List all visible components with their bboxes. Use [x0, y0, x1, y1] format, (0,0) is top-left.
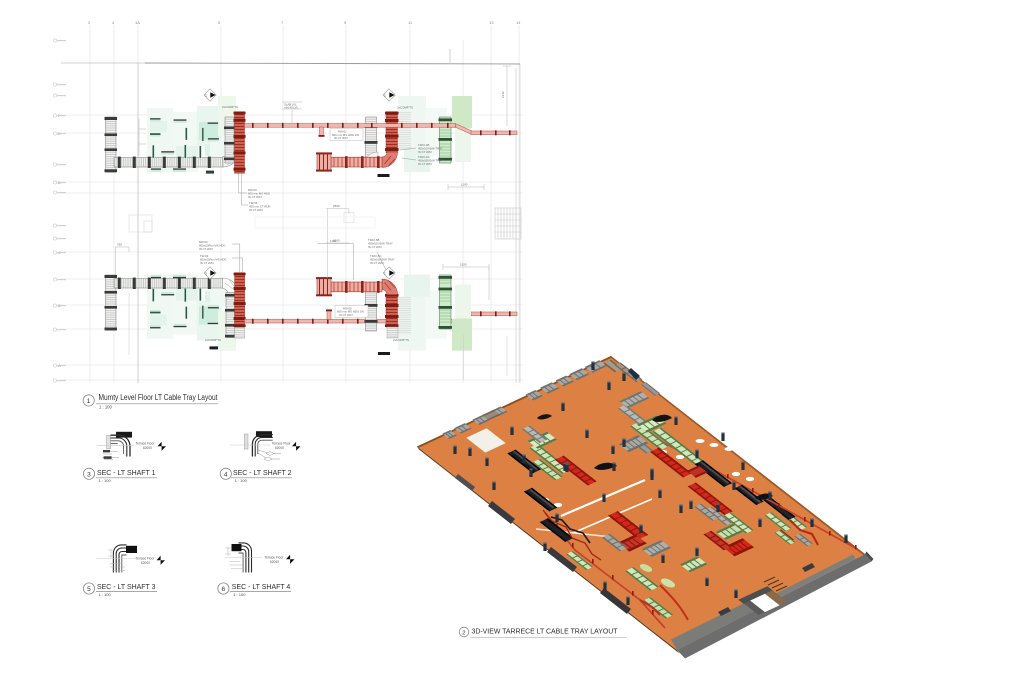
svg-text:7: 7: [281, 20, 284, 25]
svg-text:1 : 100: 1 : 100: [99, 478, 112, 483]
svg-text:1 : 100: 1 : 100: [233, 592, 246, 597]
svg-text:IN CT WAY: IN CT WAY: [248, 195, 262, 199]
svg-text:1: 1: [87, 398, 91, 405]
svg-text:62000: 62000: [275, 446, 284, 450]
svg-text:SEC - LT SHAFT 4: SEC - LT SHAFT 4: [232, 582, 290, 591]
svg-text:4: 4: [224, 471, 228, 478]
svg-text:1A: 1A: [135, 20, 140, 25]
svg-text:13: 13: [489, 20, 494, 25]
svg-text:3: 3: [87, 471, 91, 478]
svg-text:1: 1: [205, 272, 207, 276]
svg-text:IN CT WAY: IN CT WAY: [418, 150, 432, 154]
svg-text:IN CT WAY: IN CT WAY: [334, 136, 348, 140]
svg-text:1 : 100: 1 : 100: [235, 478, 248, 483]
svg-text:1 : 100: 1 : 100: [99, 592, 112, 597]
svg-text:Terrace Floor: Terrace Floor: [272, 441, 292, 445]
svg-text:62000: 62000: [141, 561, 150, 565]
svg-text:SEC - LT SHAFT 3: SEC - LT SHAFT 3: [97, 582, 156, 591]
svg-text:4: 4: [112, 20, 115, 25]
svg-text:1: 1: [384, 94, 386, 98]
svg-text:2xCOMP'TS: 2xCOMP'TS: [222, 105, 238, 109]
svg-text:11: 11: [408, 20, 413, 25]
svg-text:Terrace Floor: Terrace Floor: [136, 556, 156, 560]
svg-text:6: 6: [222, 586, 226, 593]
svg-text:9: 9: [344, 20, 347, 25]
svg-text:2500: 2500: [333, 204, 340, 208]
svg-text:1: 1: [205, 94, 207, 98]
svg-text:750: 750: [117, 243, 122, 247]
svg-text:1100: 1100: [461, 183, 468, 187]
svg-text:+66.45 LVL: +66.45 LVL: [284, 106, 299, 110]
svg-text:SEC - LT SHAFT 2: SEC - LT SHAFT 2: [233, 468, 292, 477]
svg-text:1 : 100: 1 : 100: [99, 405, 112, 410]
svg-text:2xCOMP'TS: 2xCOMP'TS: [397, 106, 413, 110]
svg-text:2: 2: [462, 630, 465, 636]
svg-text:IN CT WAY: IN CT WAY: [249, 208, 263, 212]
svg-text:2142: 2142: [501, 91, 505, 98]
svg-text:IN CT WAY: IN CT WAY: [200, 261, 214, 265]
svg-text:SEC - LT SHAFT 1: SEC - LT SHAFT 1: [97, 468, 156, 477]
svg-text:1: 1: [384, 272, 386, 276]
svg-text:2xCOMP'TS: 2xCOMP'TS: [205, 338, 221, 342]
svg-text:1100: 1100: [460, 263, 467, 267]
svg-text:IN CT WAY: IN CT WAY: [199, 247, 213, 251]
svg-text:1500: 1500: [333, 239, 340, 243]
svg-text:3D-VIEW TARRECE LT CABLE TRAY: 3D-VIEW TARRECE LT CABLE TRAY LAYOUT: [472, 627, 618, 636]
svg-text:62000: 62000: [143, 446, 152, 450]
svg-text:Mumty Level Floor LT Cable Tra: Mumty Level Floor LT Cable Tray Layout: [99, 393, 219, 402]
svg-text:Terrace Floor: Terrace Floor: [136, 441, 156, 445]
svg-text:IN CT WAY: IN CT WAY: [370, 261, 384, 265]
svg-text:Terrace Floor: Terrace Floor: [265, 555, 285, 559]
svg-text:14: 14: [516, 20, 521, 25]
svg-text:IN CT WAY: IN CT WAY: [418, 162, 432, 166]
svg-text:62000: 62000: [270, 560, 279, 564]
svg-text:5: 5: [218, 20, 221, 25]
svg-text:IN CT WAY: IN CT WAY: [368, 245, 382, 249]
svg-text:2: 2: [88, 20, 91, 25]
svg-text:IN CT WAY: IN CT WAY: [339, 313, 353, 317]
svg-text:5: 5: [87, 586, 91, 593]
svg-text:2xCOMP'TS: 2xCOMP'TS: [393, 338, 409, 342]
